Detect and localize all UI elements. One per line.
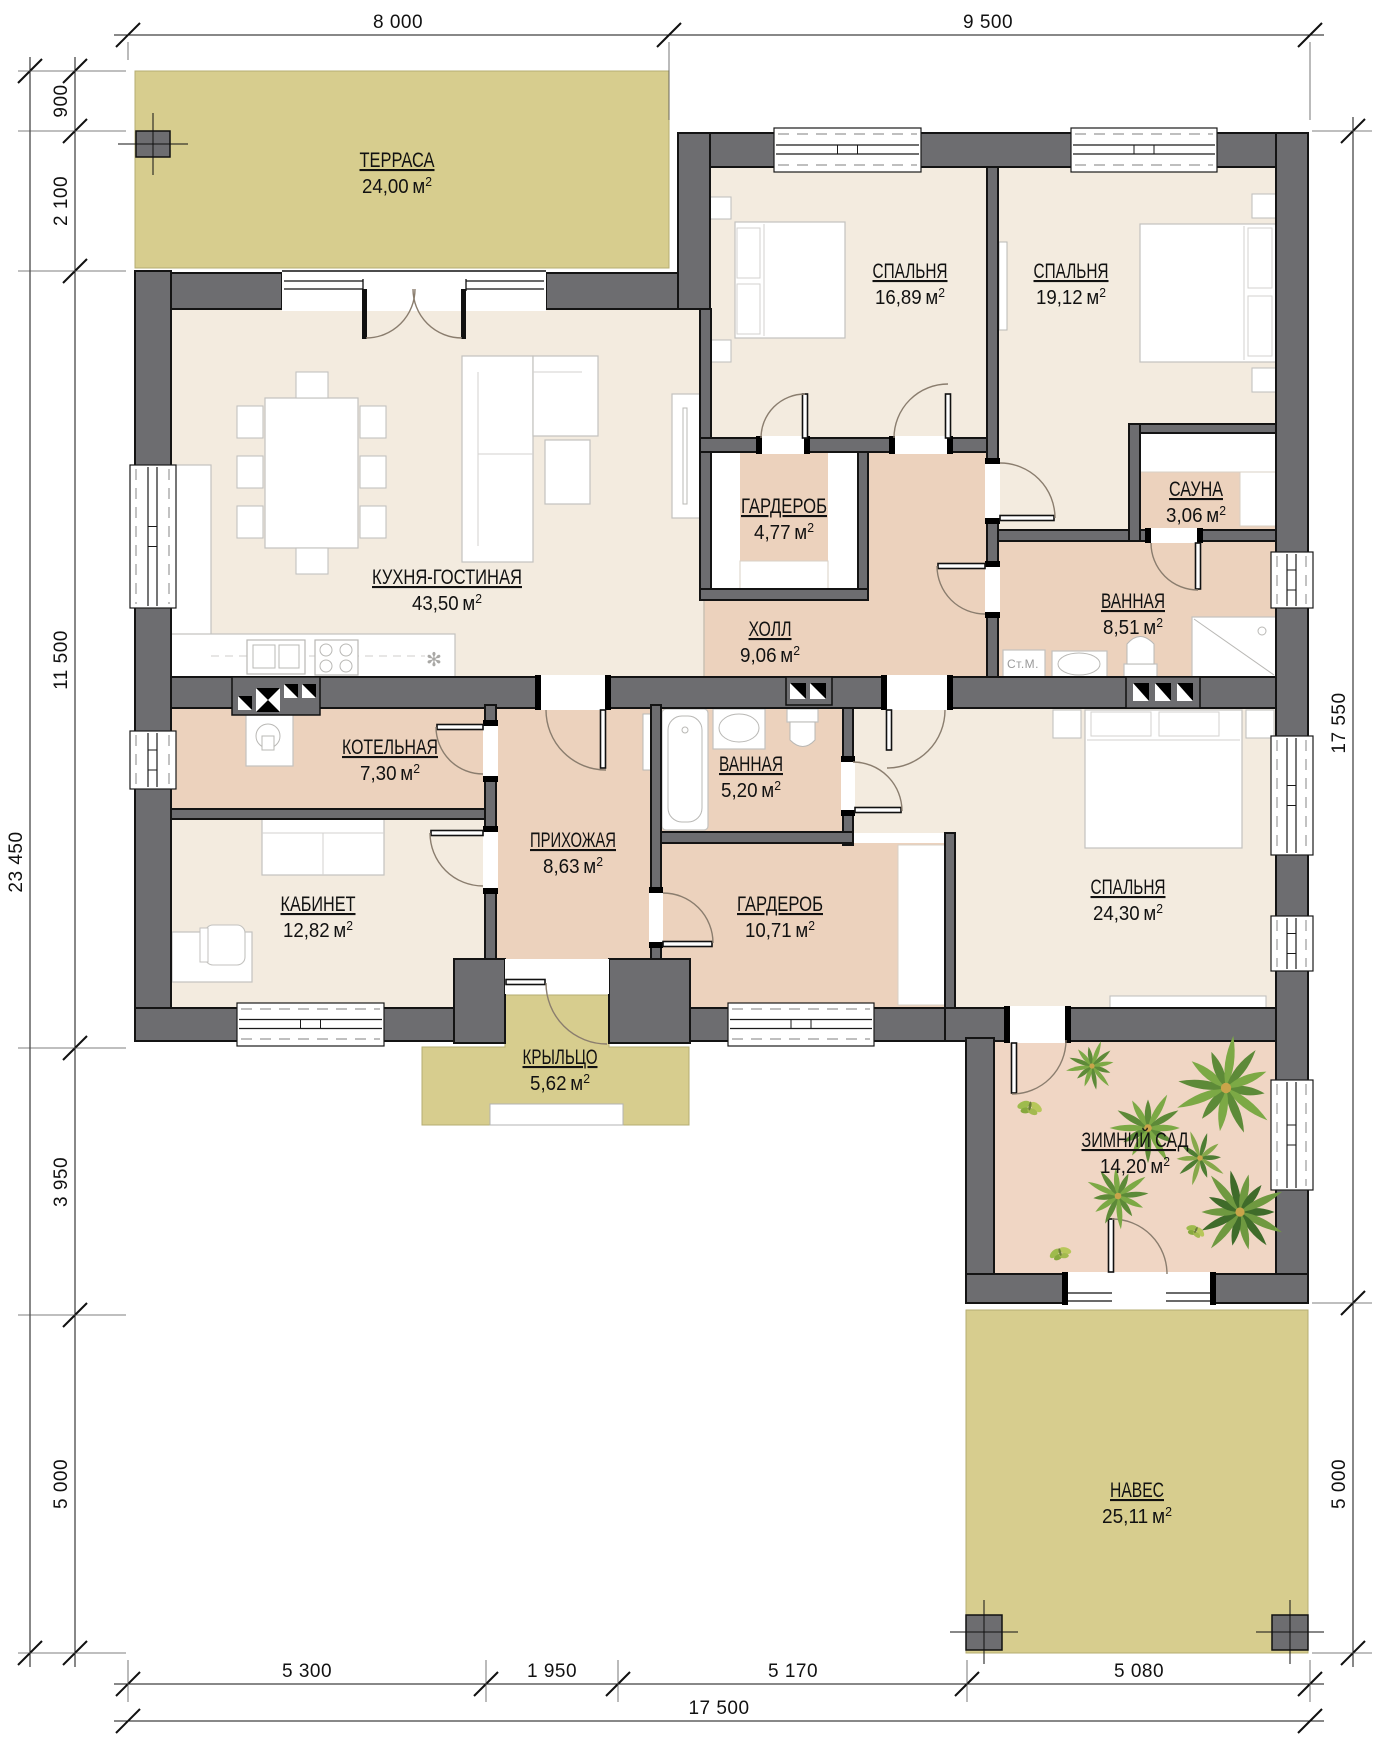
svg-text:4,77 м2: 4,77 м2 <box>754 520 814 544</box>
svg-text:КАБИНЕТ: КАБИНЕТ <box>281 893 356 916</box>
svg-text:ХОЛЛ: ХОЛЛ <box>749 618 792 641</box>
svg-text:12,82 м2: 12,82 м2 <box>283 918 353 942</box>
svg-text:ВАННАЯ: ВАННАЯ <box>719 753 783 776</box>
svg-text:ГАРДЕРОБ: ГАРДЕРОБ <box>741 495 827 518</box>
svg-text:5,20 м2: 5,20 м2 <box>721 778 781 802</box>
svg-text:17 550: 17 550 <box>1329 692 1350 753</box>
svg-text:5,62 м2: 5,62 м2 <box>530 1071 590 1095</box>
svg-text:СПАЛЬНЯ: СПАЛЬНЯ <box>1091 876 1166 899</box>
svg-text:2 100: 2 100 <box>51 176 72 226</box>
svg-text:8,51 м2: 8,51 м2 <box>1103 615 1163 639</box>
svg-text:ТЕРРАСА: ТЕРРАСА <box>360 149 435 172</box>
svg-text:16,89 м2: 16,89 м2 <box>875 285 945 309</box>
svg-text:17 500: 17 500 <box>688 1698 749 1719</box>
svg-text:9 500: 9 500 <box>963 12 1013 33</box>
svg-text:3,06 м2: 3,06 м2 <box>1166 503 1226 527</box>
svg-text:3 950: 3 950 <box>51 1157 72 1207</box>
svg-text:1 950: 1 950 <box>527 1661 577 1682</box>
svg-text:25,11 м2: 25,11 м2 <box>1102 1504 1172 1528</box>
svg-text:ГАРДЕРОБ: ГАРДЕРОБ <box>737 893 823 916</box>
svg-text:ЗИМНИЙ САД: ЗИМНИЙ САД <box>1082 1128 1189 1152</box>
svg-text:9,06 м2: 9,06 м2 <box>740 643 800 667</box>
svg-text:5 300: 5 300 <box>282 1661 332 1682</box>
svg-text:23 450: 23 450 <box>6 831 27 892</box>
svg-text:КРЫЛЬЦО: КРЫЛЬЦО <box>523 1046 598 1069</box>
svg-text:43,50 м2: 43,50 м2 <box>412 591 482 615</box>
svg-text:24,30 м2: 24,30 м2 <box>1093 901 1163 925</box>
svg-text:СПАЛЬНЯ: СПАЛЬНЯ <box>873 260 948 283</box>
svg-text:8 000: 8 000 <box>373 12 423 33</box>
svg-text:11 500: 11 500 <box>51 630 72 690</box>
svg-text:ВАННАЯ: ВАННАЯ <box>1101 590 1165 613</box>
svg-text:5 170: 5 170 <box>768 1661 818 1682</box>
svg-text:19,12 м2: 19,12 м2 <box>1036 285 1106 309</box>
svg-text:900: 900 <box>51 84 72 117</box>
svg-text:КУХНЯ-ГОСТИНАЯ: КУХНЯ-ГОСТИНАЯ <box>372 566 522 589</box>
svg-text:5 000: 5 000 <box>1329 1459 1350 1509</box>
svg-text:5 000: 5 000 <box>51 1459 72 1509</box>
svg-text:7,30 м2: 7,30 м2 <box>360 761 420 785</box>
svg-text:Ст.М.: Ст.М. <box>1007 657 1039 671</box>
svg-text:НАВЕС: НАВЕС <box>1110 1479 1164 1502</box>
svg-text:КОТЕЛЬНАЯ: КОТЕЛЬНАЯ <box>342 736 438 759</box>
svg-text:10,71 м2: 10,71 м2 <box>745 918 815 942</box>
svg-text:ПРИХОЖАЯ: ПРИХОЖАЯ <box>530 829 616 852</box>
svg-text:14,20 м2: 14,20 м2 <box>1100 1154 1170 1178</box>
svg-text:СПАЛЬНЯ: СПАЛЬНЯ <box>1034 260 1109 283</box>
svg-text:САУНА: САУНА <box>1169 478 1223 501</box>
svg-text:24,00 м2: 24,00 м2 <box>362 174 432 198</box>
svg-text:✻: ✻ <box>426 650 442 671</box>
svg-text:8,63 м2: 8,63 м2 <box>543 854 603 878</box>
svg-text:5 080: 5 080 <box>1114 1661 1164 1682</box>
